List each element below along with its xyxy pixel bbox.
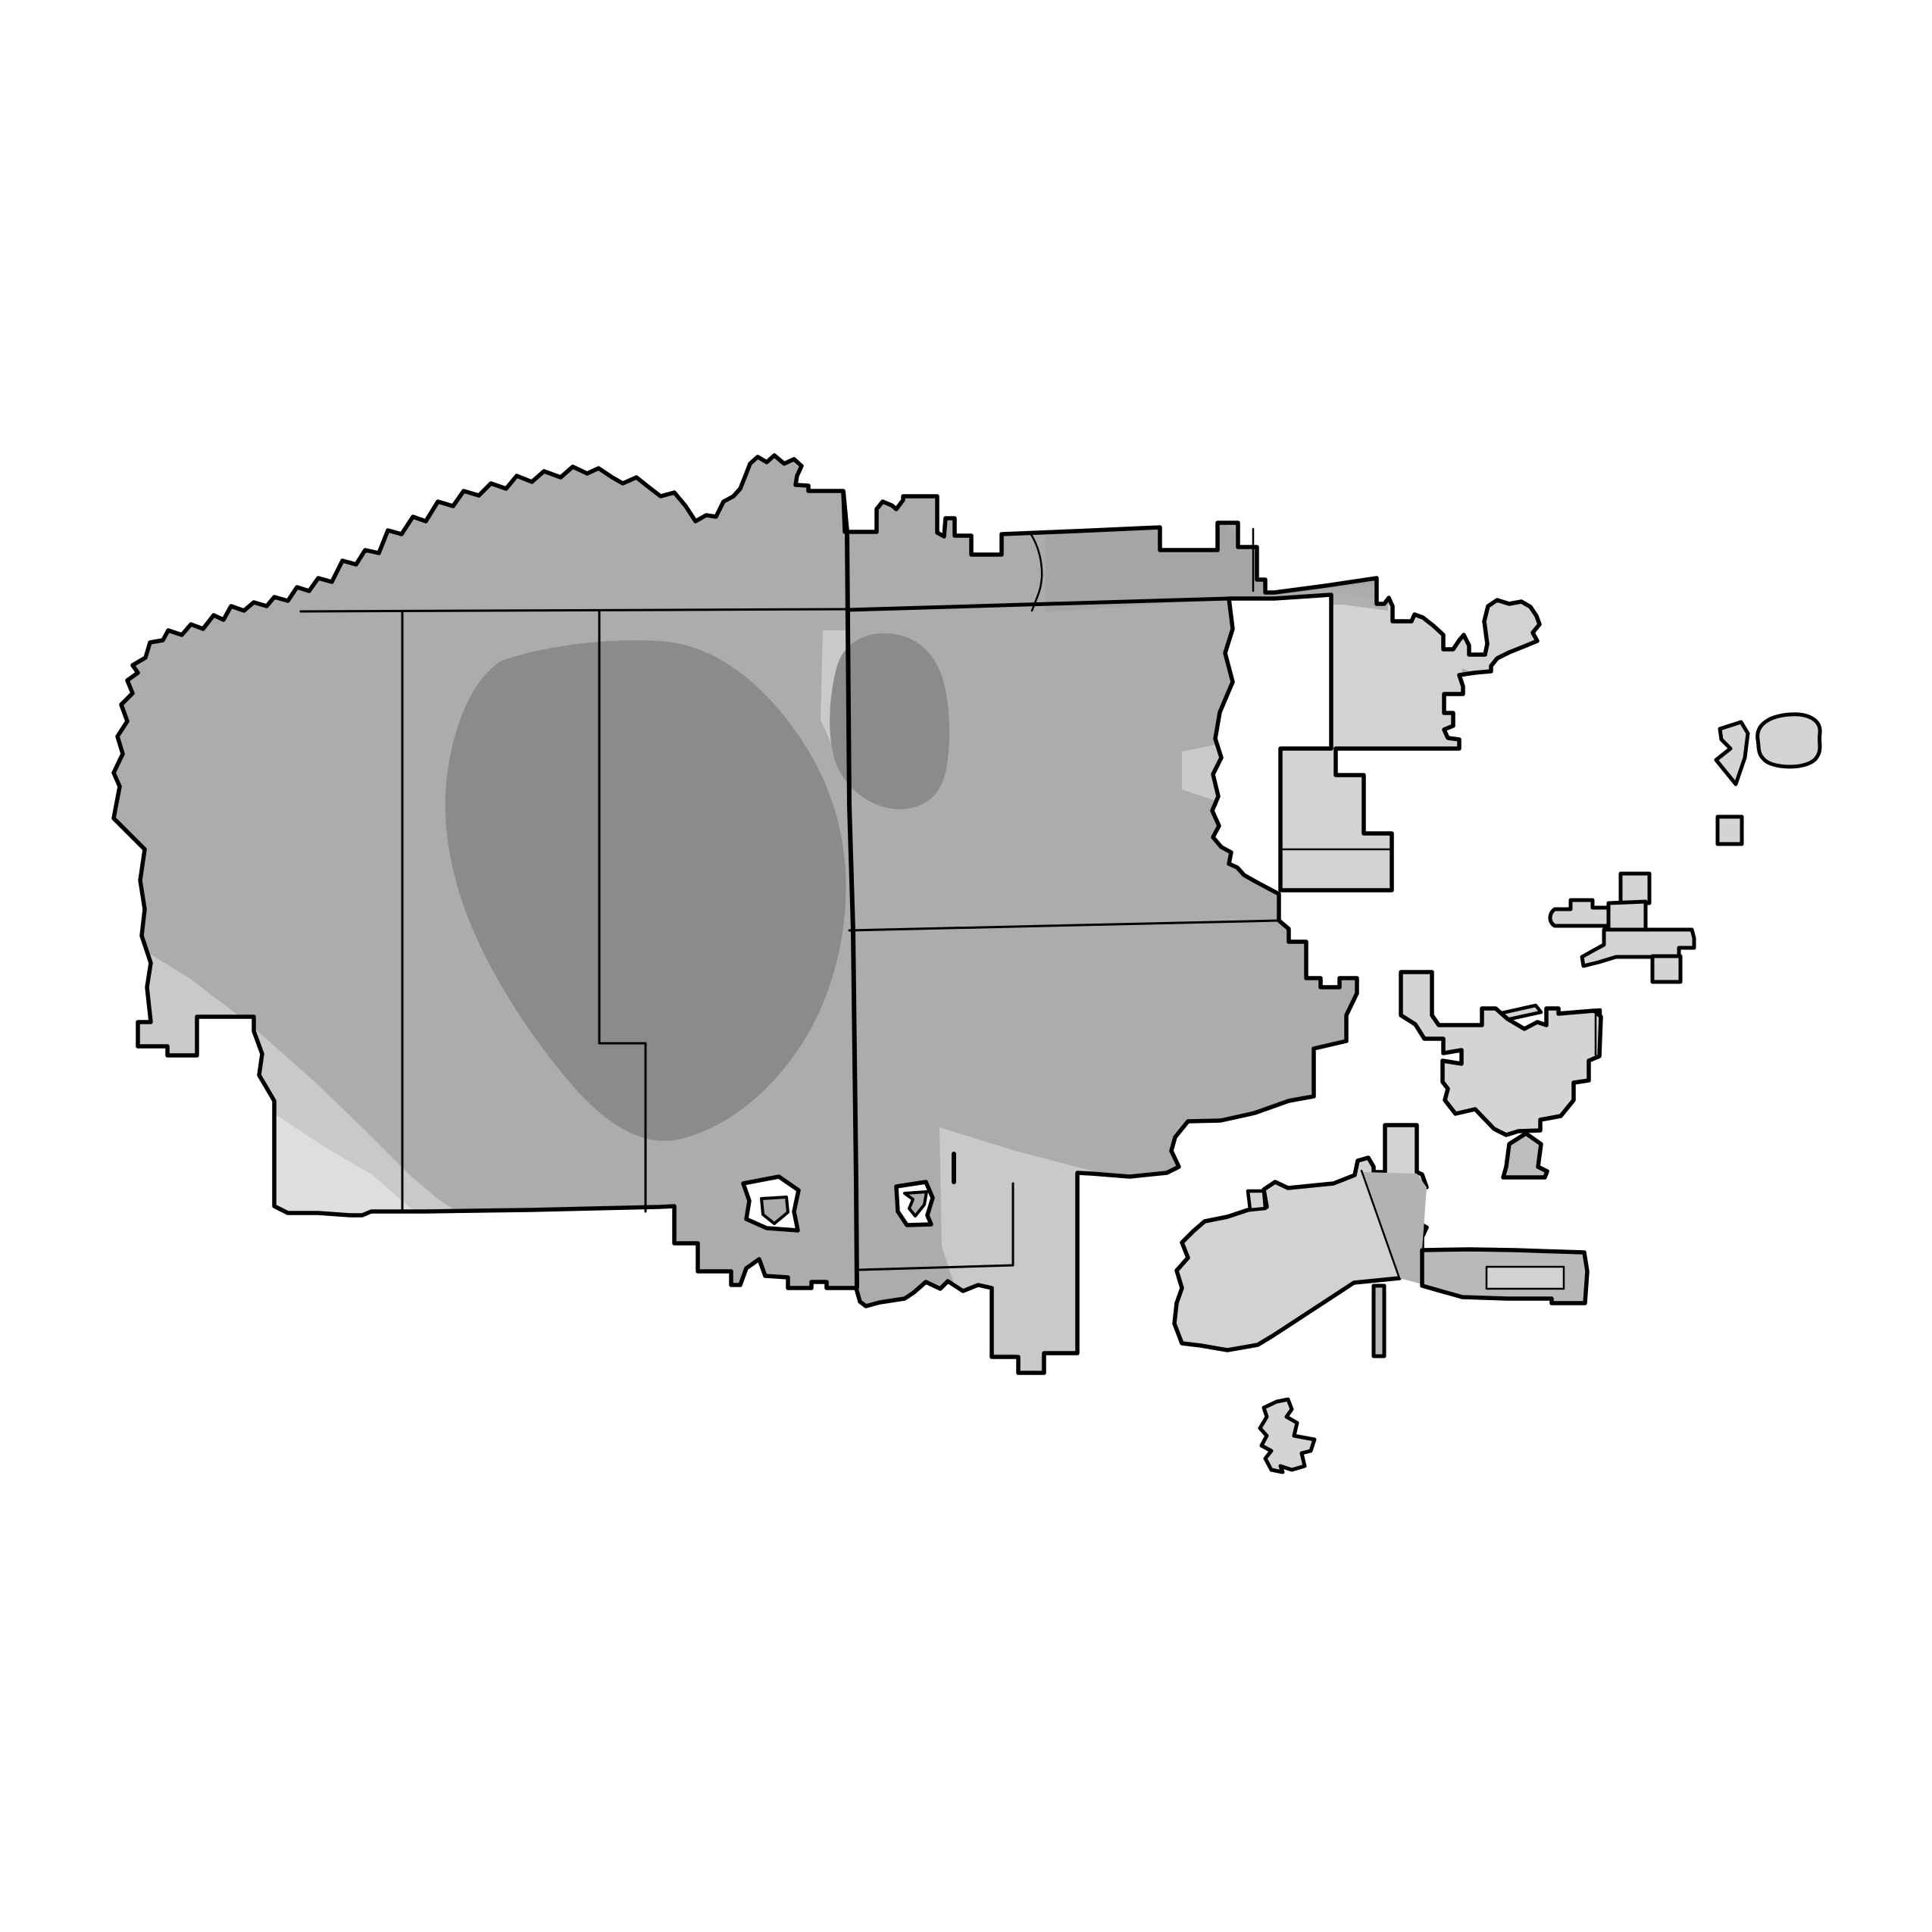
map-svg: [0, 0, 1932, 1932]
enclave-island-west: [761, 1197, 788, 1224]
island-ne-wedge: [1716, 722, 1748, 784]
island-pentagon: [1503, 1133, 1547, 1177]
cluster-plus-center: [1608, 902, 1646, 930]
island-ne-round-blob: [1758, 714, 1820, 767]
cluster-airport-body: [1401, 972, 1601, 1135]
cluster-se-leg: [1374, 1286, 1384, 1356]
enclave-island-east: [905, 1192, 927, 1216]
island-south-jagged: [1260, 1399, 1315, 1472]
cluster-plus-left-arm: [1550, 900, 1608, 926]
cluster-plus-square-bottom: [1652, 956, 1680, 982]
cluster-plus-square-top: [1621, 874, 1649, 903]
map-canvas: [0, 0, 1932, 1932]
cluster-se-inner-parcel: [1487, 1267, 1564, 1289]
island-se-triangle: [1248, 1191, 1265, 1210]
island-ne-square: [1718, 817, 1742, 844]
